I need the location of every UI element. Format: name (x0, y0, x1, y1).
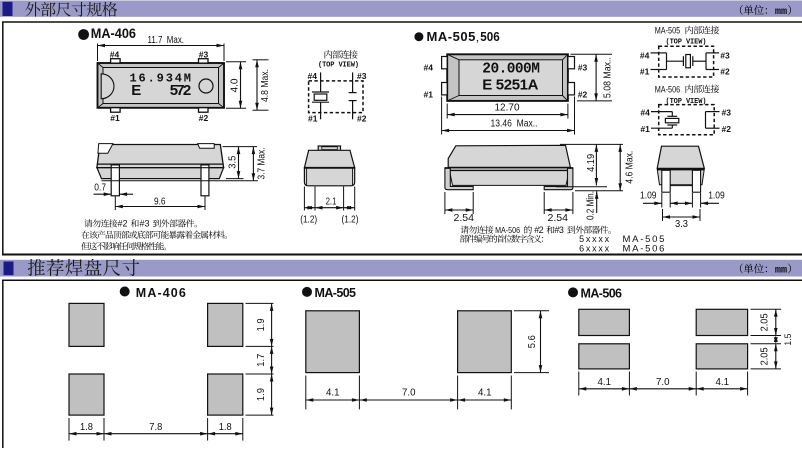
svg-text:MA-505: MA-505 (427, 29, 476, 44)
svg-text:2.05: 2.05 (760, 313, 771, 331)
svg-text:6xxxx: 6xxxx (579, 244, 610, 254)
svg-text:#3: #3 (199, 49, 209, 59)
svg-text:1.9: 1.9 (256, 388, 267, 401)
svg-text:(1.2): (1.2) (300, 214, 317, 226)
svg-text:MA-506: MA-506 (623, 244, 665, 255)
svg-text:#3: #3 (357, 71, 367, 81)
svg-text:(TOP VIEW): (TOP VIEW) (666, 38, 707, 46)
svg-text:20.000M: 20.000M (482, 62, 540, 78)
svg-text:#3: #3 (578, 63, 588, 73)
svg-text:7.8: 7.8 (149, 422, 162, 433)
svg-text:4.19: 4.19 (586, 154, 597, 172)
svg-text:(TOP VIEW): (TOP VIEW) (318, 62, 359, 70)
svg-text:3.7 Max.: 3.7 Max. (256, 148, 267, 180)
svg-text:13.46 Max..: 13.46 Max.. (491, 118, 538, 130)
svg-text:#2: #2 (722, 124, 732, 134)
svg-text:7.0: 7.0 (656, 377, 670, 388)
svg-text:5.6: 5.6 (527, 335, 538, 348)
svg-text:4.8 Max.: 4.8 Max. (260, 69, 271, 102)
svg-text:#3: #3 (720, 51, 730, 61)
svg-text:0.2 Min.: 0.2 Min. (586, 191, 597, 220)
svg-text:#3: #3 (722, 107, 732, 117)
svg-text:#3: #3 (554, 225, 564, 235)
svg-text:#4: #4 (424, 63, 434, 73)
svg-text:4.1: 4.1 (598, 377, 612, 388)
svg-text:#4: #4 (640, 51, 650, 61)
svg-text:(1.2): (1.2) (342, 214, 359, 226)
svg-text:1.8: 1.8 (219, 422, 232, 433)
svg-text:#4: #4 (110, 49, 120, 59)
svg-text:#4: #4 (308, 71, 318, 81)
svg-text:#1: #1 (308, 113, 318, 123)
svg-text:mm: mm (775, 7, 787, 18)
svg-text:#1: #1 (640, 67, 650, 77)
svg-text:1.9: 1.9 (256, 318, 267, 331)
svg-text:#3: #3 (140, 219, 150, 229)
svg-text:MA-406: MA-406 (91, 25, 136, 41)
svg-text:1.8: 1.8 (80, 422, 93, 433)
svg-text:506: 506 (480, 29, 499, 44)
svg-text:MA-506: MA-506 (495, 225, 520, 235)
svg-text:#2: #2 (534, 225, 544, 235)
svg-text:MA-506: MA-506 (581, 286, 623, 300)
svg-text:#2: #2 (357, 113, 367, 123)
svg-text:#2: #2 (199, 113, 209, 123)
svg-text:1.09: 1.09 (640, 191, 657, 202)
svg-text:4.1: 4.1 (326, 388, 340, 399)
svg-text:12.70: 12.70 (495, 102, 520, 114)
svg-text:1.09: 1.09 (708, 191, 725, 202)
svg-text:#2: #2 (720, 67, 730, 77)
svg-text:7.0: 7.0 (402, 388, 416, 399)
svg-text:572: 572 (170, 82, 192, 99)
svg-text:2.05: 2.05 (760, 347, 771, 365)
svg-text:MA-506: MA-506 (655, 84, 681, 94)
svg-text:#4: #4 (640, 107, 650, 117)
svg-text:3.5: 3.5 (228, 155, 239, 168)
svg-text:MA-406: MA-406 (136, 286, 186, 300)
svg-text:5xxxx: 5xxxx (579, 234, 610, 244)
svg-text:9.6: 9.6 (154, 195, 166, 207)
svg-text:2.54: 2.54 (548, 212, 569, 224)
svg-text:MA-505: MA-505 (315, 286, 357, 300)
svg-text:#1: #1 (640, 124, 650, 134)
svg-text:4.1: 4.1 (716, 377, 730, 388)
svg-text:E: E (131, 82, 141, 99)
svg-text:5.08 Max..: 5.08 Max.. (603, 57, 614, 98)
svg-text:#1: #1 (424, 89, 434, 99)
svg-text:3.3: 3.3 (675, 218, 688, 230)
svg-text:4.6 Max.: 4.6 Max. (624, 151, 635, 184)
svg-text:4.0: 4.0 (229, 78, 240, 92)
svg-text:#1: #1 (110, 113, 120, 123)
svg-text:E 5251A: E 5251A (482, 76, 538, 93)
svg-text:#2: #2 (118, 219, 128, 229)
svg-text:2.54: 2.54 (454, 212, 475, 224)
svg-text:4.1: 4.1 (478, 388, 492, 399)
svg-text:2.1: 2.1 (326, 196, 337, 208)
svg-text:1.7: 1.7 (256, 353, 267, 366)
svg-text:MA-505: MA-505 (655, 26, 681, 36)
svg-text:0.7: 0.7 (94, 183, 106, 194)
svg-text:mm: mm (775, 266, 787, 277)
svg-text:1.5: 1.5 (783, 334, 794, 346)
svg-text:11.7 Max.: 11.7 Max. (148, 34, 185, 46)
svg-text:#2: #2 (578, 89, 588, 99)
